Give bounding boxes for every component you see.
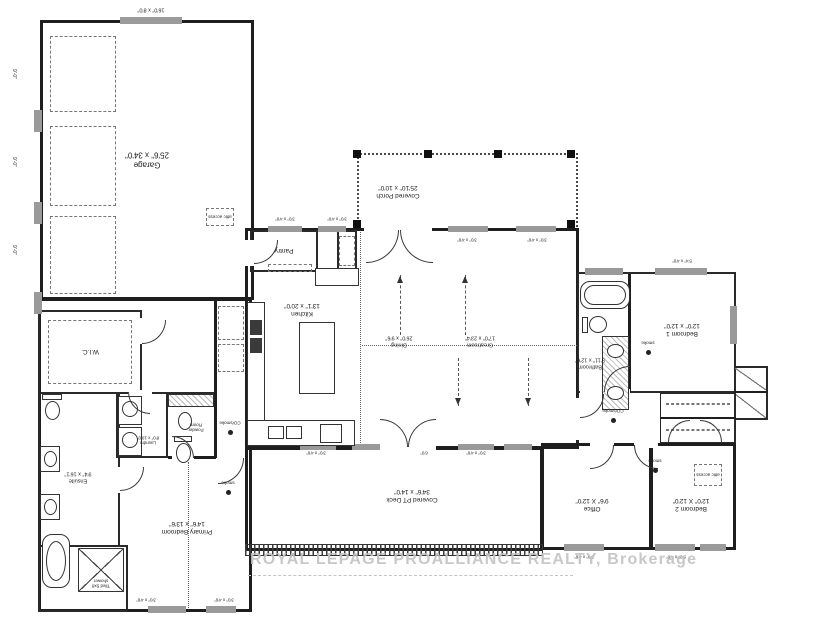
kitchen-counter: [315, 268, 359, 286]
brokerage-watermark: ROYAL LEPAGE PROALLIANCE REALTY, Brokera…: [250, 551, 697, 569]
closet-rod: [666, 403, 730, 405]
side-dim-label: 9'-0": [11, 245, 17, 255]
hall-linen-closet: [218, 306, 244, 340]
floor-plan: Garage 25'6" x 34'0" Covered Porch 25'10…: [0, 0, 816, 621]
annotation-text: attic access: [695, 472, 721, 477]
porch-post: [424, 150, 432, 158]
room-dims: 26'0" x 9'6": [385, 334, 412, 341]
room-dims: 13'1" x 20'0": [284, 301, 320, 309]
kitchen-label: Kitchen 13'1" x 20'0": [284, 301, 320, 317]
powder-room-label: Powder Room: [183, 422, 209, 433]
annotation-text: CO/smoke: [602, 408, 623, 413]
garage-label: Garage 25'6" x 34'0": [125, 150, 169, 169]
dining-label: Dining 26'0" x 9'6": [385, 334, 412, 347]
room-name: Primary Bedroom: [162, 527, 213, 535]
room-dims: 9'6" X 12'0": [575, 496, 608, 504]
ceiling-slope-arrow: [458, 358, 459, 406]
window: [516, 226, 556, 232]
window-dim-label: 3'0" x 4'6": [214, 597, 234, 602]
annotation-text: 6'0": [420, 450, 427, 455]
bathroom-sink: [607, 344, 624, 358]
porch-post: [353, 150, 361, 158]
primary-ceiling-line: [188, 462, 189, 608]
smoke-label: smoke: [221, 480, 234, 485]
window-dim-label: 3'0" x 4'6": [306, 450, 326, 455]
toilet-bowl: [45, 401, 60, 420]
pantry-shelves: [268, 264, 312, 272]
room-dims: 17'0" x 23'4": [465, 334, 495, 341]
kitchen-sink: [286, 426, 302, 439]
annotation-text: CO/smoke: [219, 420, 240, 425]
powder-vanity: [168, 394, 214, 407]
co-smoke-detector: [228, 430, 233, 435]
side-dim-label: 9'-0": [11, 69, 17, 79]
shower-label: Tiled 5x8 shower: [86, 578, 116, 589]
deck-step-edge: [248, 575, 573, 576]
room-name: Greatroom: [465, 341, 495, 348]
annotation-text: 3'0" x 4'0": [327, 216, 347, 221]
smoke-detector: [653, 468, 658, 473]
greatroom-label: Greatroom 17'0" x 23'4": [465, 334, 495, 347]
window: [318, 226, 346, 232]
annotation-text: 3'0" x 4'6": [527, 237, 547, 242]
room-name: W.I.C.: [81, 347, 99, 355]
wic-label: W.I.C.: [81, 347, 99, 355]
room-name: Bathroom: [575, 363, 605, 370]
kitchen-sink: [268, 426, 284, 439]
room-name: Office: [575, 504, 608, 512]
annotation-text: attic access: [207, 214, 233, 219]
room-dims: 25'10" x 10'0": [376, 183, 419, 191]
annotation-text: Tiled 5x8 shower: [86, 578, 116, 589]
kitchen-island: [299, 322, 335, 394]
smoke-detector: [646, 350, 651, 355]
toilet-tank: [42, 394, 62, 400]
ensuite-sink-basin: [44, 451, 57, 467]
bedroom2-label: Bedroom 2 12'0" X 12'0": [673, 496, 710, 512]
covered-deck-label: Covered PT Deck 34'6" x 14'0": [386, 487, 437, 503]
window: [700, 544, 726, 551]
window: [34, 110, 42, 132]
room-name: Covered PT Deck: [386, 495, 437, 503]
window: [206, 606, 236, 613]
garage-stall-outline: [50, 36, 116, 112]
room-name: Garage: [125, 160, 169, 170]
annotation-text: 3'0" x 4'6": [214, 597, 234, 602]
window: [148, 606, 186, 613]
room-name: Bedroom 2: [673, 504, 710, 512]
room-dims: 12'0" x 12'0": [664, 321, 700, 329]
window: [34, 202, 42, 224]
annotation-text: 16'0" x 8'0": [137, 6, 164, 13]
window: [34, 292, 42, 314]
window: [730, 306, 737, 344]
wall: [734, 391, 768, 393]
window: [585, 268, 623, 275]
toilet-tank: [582, 317, 588, 333]
co-smoke-detector: [611, 418, 616, 423]
fridge: [250, 338, 262, 353]
porch-post: [494, 150, 502, 158]
office-label: Office 9'6" X 12'0": [575, 496, 608, 512]
window-dim-label: 3'0" x 4'0": [275, 216, 295, 221]
window: [268, 226, 302, 232]
garage-stall-outline: [50, 216, 116, 294]
room-dims: 25'6" x 34'0": [125, 150, 169, 160]
wall: [660, 417, 736, 419]
window-dim-label: 5'4" x 4'0": [672, 258, 692, 263]
foyer-closet-shelves: [339, 236, 355, 266]
door-dim-label: 6'0": [420, 450, 427, 455]
annotation-text: 3'0" x 4'0": [275, 216, 295, 221]
garage-door: [120, 17, 182, 24]
pantry-label: Pantry: [275, 246, 294, 254]
dishwasher: [320, 424, 342, 443]
room-dims: 8'0" x 10'0": [137, 435, 159, 440]
primary-bedroom-label: Primary Bedroom 14'6" x 13'6": [162, 519, 213, 535]
ensuite-label: Ensuite 9'4" x 16'1": [64, 470, 91, 483]
toilet-bowl: [589, 316, 607, 333]
kitchen-dining-divider: [360, 232, 361, 445]
covered-porch-label: Covered Porch 25'10" x 10'0": [376, 183, 419, 199]
room-dims: 34'6" x 14'0": [386, 487, 437, 495]
closet-shelf-diagonal: [735, 394, 766, 418]
annotation-text: 3'0" x 4'6": [306, 450, 326, 455]
room-name: Dining: [385, 341, 412, 348]
room-dims: 12'0" X 12'0": [673, 496, 710, 504]
room-name: Powder Room: [183, 422, 209, 433]
smoke-label: smoke: [641, 340, 654, 345]
annotation-text: smoke: [641, 340, 654, 345]
ceiling-slope-arrow: [465, 275, 466, 335]
room-name: Ensuite: [64, 477, 91, 484]
porch-post: [353, 220, 361, 228]
smoke-label: smoke: [648, 458, 661, 463]
window: [564, 544, 604, 551]
window: [352, 444, 380, 450]
annotation-text: smoke: [648, 458, 661, 463]
stove: [250, 320, 262, 335]
attic-access-label: attic access: [695, 472, 721, 477]
room-name: Kitchen: [284, 309, 320, 317]
laundry-label: Laundry 8'0" x 10'0": [137, 435, 159, 446]
annotation-text: 3'0" x 4'6": [136, 597, 156, 602]
window-dim-label: 3'0" x 4'6": [136, 597, 156, 602]
bathtub-basin: [584, 285, 626, 305]
room-name: Covered Porch: [376, 191, 419, 199]
window: [448, 226, 488, 232]
room-name: Laundry: [137, 440, 159, 445]
annotation-text: smoke: [221, 480, 234, 485]
attic-access-label: attic access: [207, 214, 233, 219]
side-dim-label: 9'-0": [11, 157, 17, 167]
room-name: Bedroom 1: [664, 329, 700, 337]
window-dim-label: 3'0" x 4'6": [527, 237, 547, 242]
annotation-text: 3'0" x 4'6": [466, 450, 486, 455]
smoke-detector: [226, 490, 231, 495]
room-dims: 14'6" x 13'6": [162, 519, 213, 527]
dryer-drum: [122, 432, 138, 448]
window: [655, 268, 707, 275]
co-smoke-label: CO/smoke: [602, 408, 623, 413]
bedroom1-label: Bedroom 1 12'0" x 12'0": [664, 321, 700, 337]
annotation-text: 3'0" x 4'6": [457, 237, 477, 242]
annotation-text: 5'4" x 4'0": [672, 258, 692, 263]
window-dim-label: 3'0" x 4'6": [457, 237, 477, 242]
closet-shelf-diagonal: [735, 368, 766, 390]
ceiling-slope-arrow: [400, 275, 401, 335]
porch-post: [567, 220, 575, 228]
wall: [214, 298, 217, 458]
window: [458, 444, 494, 450]
window-dim-label: 3'0" x 4'0": [327, 216, 347, 221]
room-dims: 9'4" x 16'1": [64, 470, 91, 477]
tub-basin: [46, 541, 66, 581]
ceiling-slope-arrow: [528, 358, 529, 406]
co-smoke-label: CO/smoke: [219, 420, 240, 425]
garage-stall-outline: [50, 126, 116, 206]
window: [504, 444, 532, 450]
porch-post: [567, 150, 575, 158]
window: [655, 544, 695, 551]
room-name: Pantry: [275, 246, 294, 254]
garage-door-dim-label: 16'0" x 8'0": [137, 6, 164, 13]
bathroom-label: Bathroom 5'11" x 12'6": [575, 356, 605, 369]
window-dim-label: 3'0" x 4'6": [466, 450, 486, 455]
ensuite-sink-basin: [44, 499, 57, 515]
hall-linen-closet: [218, 344, 244, 372]
room-dims: 5'11" x 12'6": [575, 356, 605, 363]
